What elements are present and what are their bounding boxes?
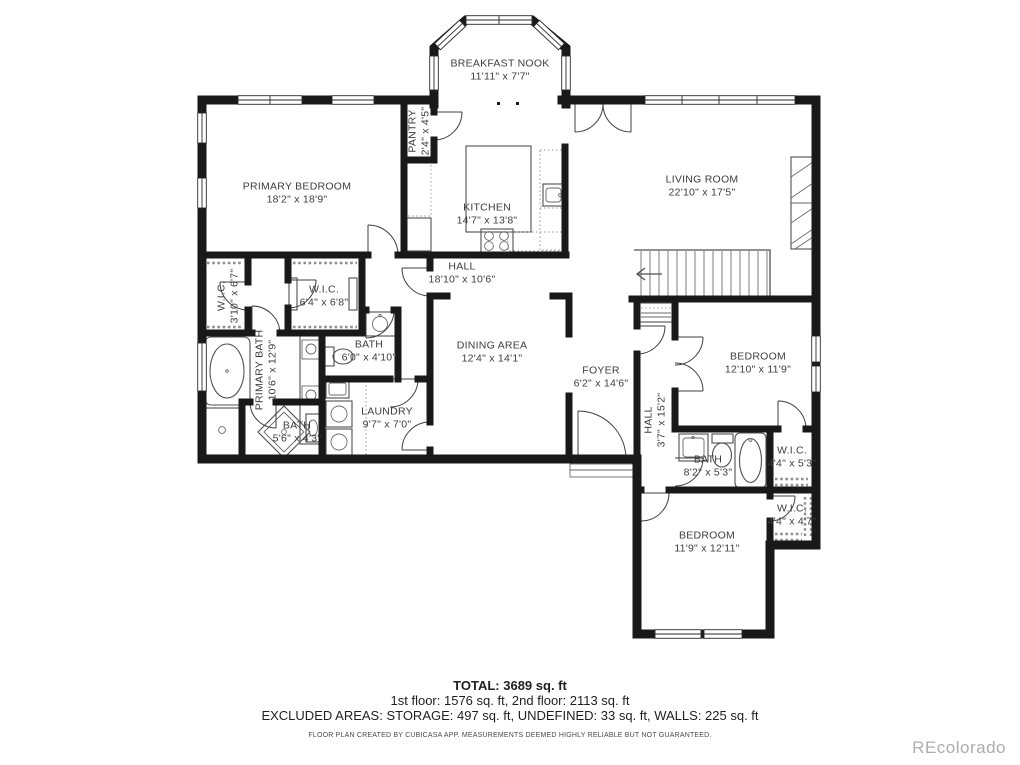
excluded-areas-text: EXCLUDED AREAS: STORAGE: 497 sq. ft, UND…: [0, 708, 1020, 723]
understair-closet: [639, 303, 673, 322]
dryer-icon: [326, 429, 352, 455]
right-bath-toilet-icon: [712, 434, 733, 467]
floor-plan-page: BREAKFAST NOOK11'11" x 7'7"PRIMARY BEDRO…: [0, 0, 1020, 765]
kitchen-counter: [540, 208, 563, 250]
interior-walls: [202, 100, 816, 545]
shower-icon: [205, 408, 241, 455]
hall-bath-toilet-icon: [325, 347, 353, 366]
fridge-icon: [406, 218, 431, 251]
kitchen-counter: [508, 232, 564, 251]
bathtub-icon: [205, 337, 250, 405]
washer-icon: [326, 401, 352, 427]
plan-footer: TOTAL: 3689 sq. ft 1st floor: 1576 sq. f…: [0, 678, 1020, 739]
kitchen-island: [466, 146, 531, 232]
corner-shower-icon: [258, 406, 310, 458]
right-bathtub-icon: [735, 433, 766, 488]
recolorado-watermark: REcolorado: [912, 738, 1006, 758]
disclaimer-text: FLOOR PLAN CREATED BY CUBICASA APP. MEAS…: [0, 732, 1020, 739]
staircase: [634, 250, 770, 297]
floor-areas-text: 1st floor: 1576 sq. ft, 2nd floor: 2113 …: [0, 693, 1020, 708]
kitchen-cabinet: [406, 162, 431, 216]
entry-porch: [570, 464, 634, 477]
right-bath-vanity-icon: [679, 434, 708, 461]
kitchen-sink-icon: [543, 184, 564, 206]
laundry-sink-icon: [326, 380, 349, 398]
hall-bath-sink-icon: [364, 312, 396, 336]
total-area-text: TOTAL: 3689 sq. ft: [0, 678, 1020, 693]
floor-plan-canvas: [0, 0, 1020, 765]
small-bath-sink-icon: [306, 414, 320, 442]
